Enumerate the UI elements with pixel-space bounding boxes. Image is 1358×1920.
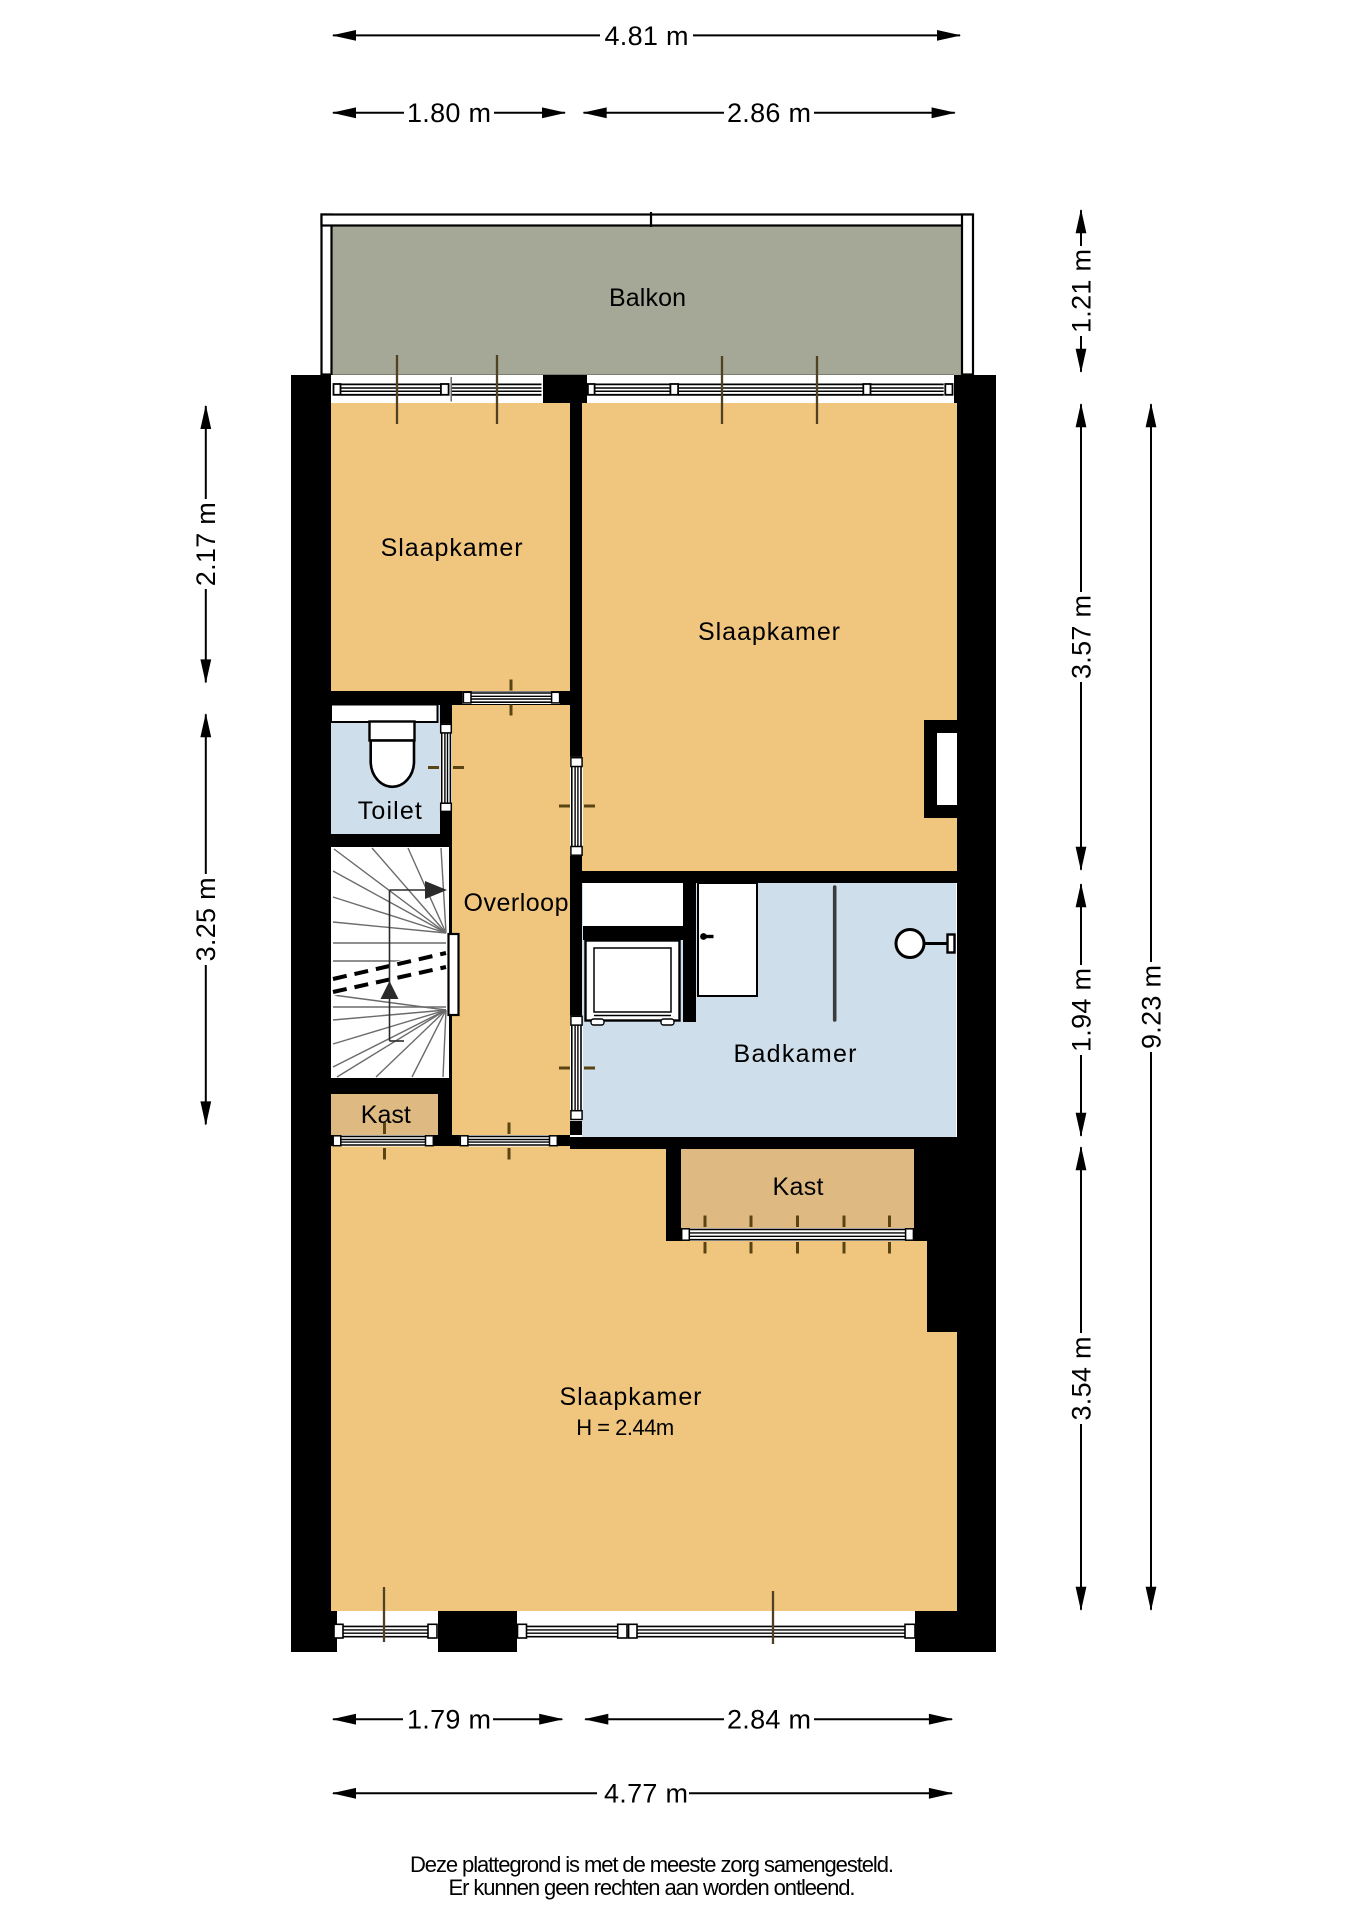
svg-text:3.57 m: 3.57 m (1066, 595, 1096, 679)
svg-text:2.17 m: 2.17 m (191, 502, 221, 586)
svg-text:H = 2.44m: H = 2.44m (576, 1415, 674, 1440)
svg-text:Kast: Kast (773, 1173, 824, 1201)
svg-text:Overloop: Overloop (464, 889, 569, 917)
svg-text:Deze plattegrond is met de mee: Deze plattegrond is met de meeste zorg s… (410, 1852, 894, 1877)
svg-text:Toilet: Toilet (358, 797, 422, 825)
svg-text:Slaapkamer: Slaapkamer (698, 618, 840, 646)
svg-text:1.79 m: 1.79 m (407, 1705, 491, 1735)
svg-text:1.80 m: 1.80 m (407, 98, 491, 128)
svg-text:Badkamer: Badkamer (734, 1040, 857, 1068)
svg-text:Balkon: Balkon (609, 284, 686, 312)
svg-text:Slaapkamer: Slaapkamer (381, 534, 523, 562)
svg-text:1.94 m: 1.94 m (1066, 968, 1096, 1052)
svg-text:2.86 m: 2.86 m (727, 98, 811, 128)
svg-text:Slaapkamer: Slaapkamer (560, 1383, 702, 1411)
svg-text:9.23 m: 9.23 m (1136, 965, 1166, 1049)
svg-text:2.84 m: 2.84 m (727, 1705, 811, 1735)
svg-text:3.25 m: 3.25 m (191, 877, 221, 961)
svg-text:4.77 m: 4.77 m (604, 1779, 688, 1809)
svg-text:3.54 m: 3.54 m (1066, 1337, 1096, 1421)
svg-text:4.81 m: 4.81 m (605, 21, 689, 51)
svg-text:Er kunnen geen rechten aan wor: Er kunnen geen rechten aan worden ontlee… (449, 1875, 856, 1900)
svg-text:1.21 m: 1.21 m (1066, 249, 1096, 333)
svg-text:Kast: Kast (361, 1101, 411, 1129)
